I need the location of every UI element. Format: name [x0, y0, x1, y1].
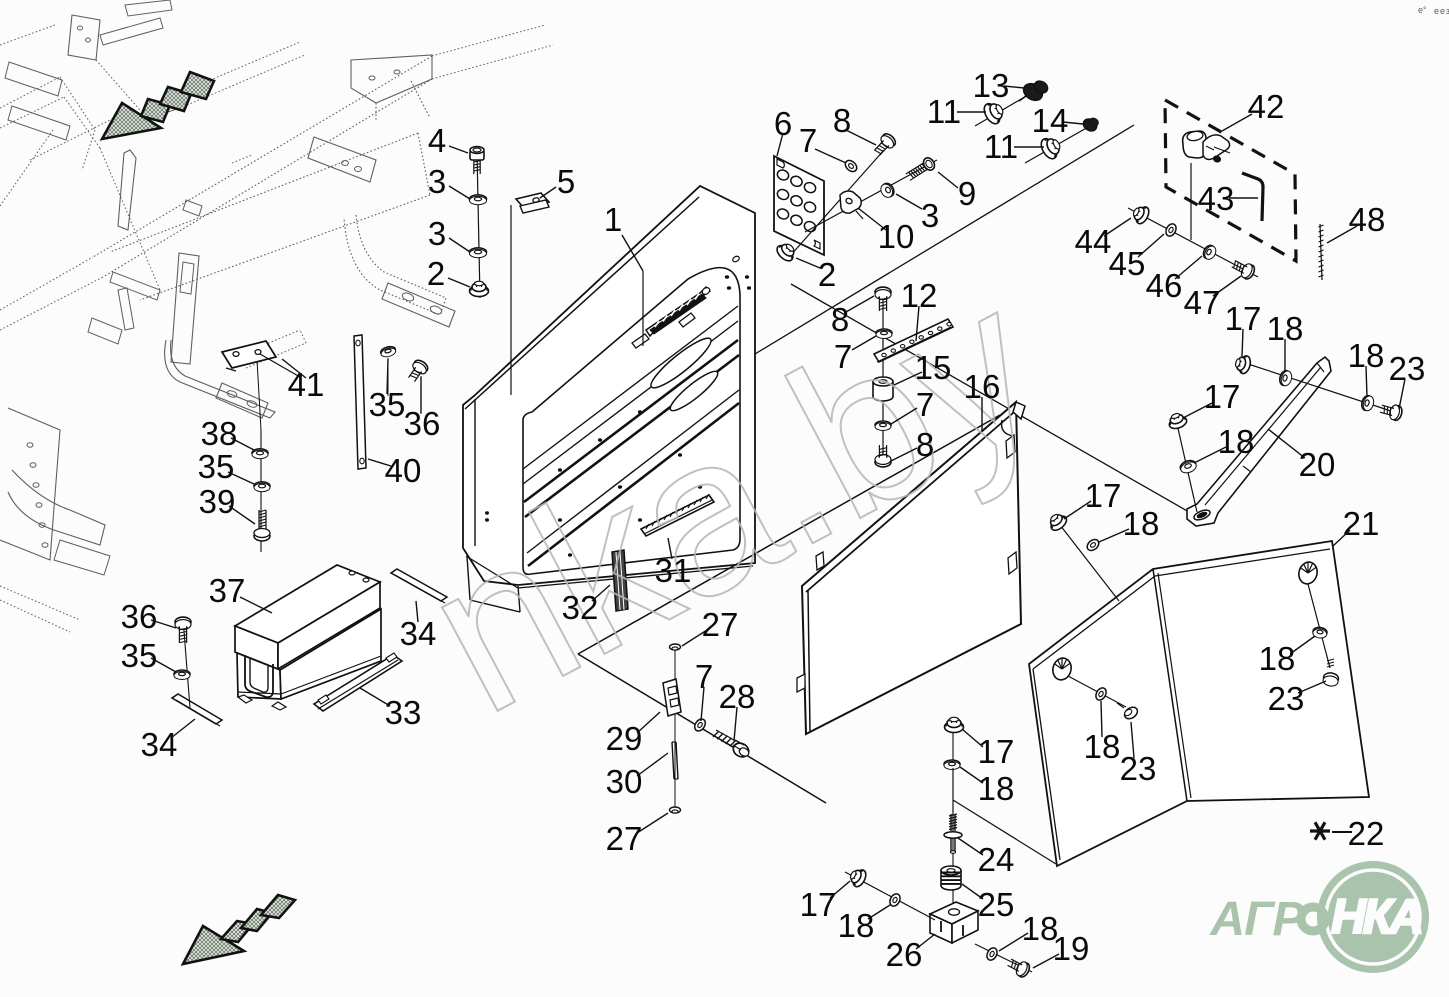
- svg-text:5: 5: [557, 163, 575, 200]
- svg-text:8: 8: [833, 102, 851, 139]
- svg-text:АГР: АГР: [1209, 893, 1305, 946]
- svg-text:36: 36: [404, 405, 441, 442]
- svg-text:37: 37: [209, 572, 246, 609]
- svg-text:45: 45: [1109, 245, 1146, 282]
- svg-text:7: 7: [799, 122, 817, 159]
- svg-text:22: 22: [1348, 815, 1385, 852]
- svg-text:7: 7: [834, 338, 852, 375]
- svg-text:36: 36: [121, 598, 158, 635]
- svg-text:14: 14: [1032, 102, 1069, 139]
- svg-text:НКА: НКА: [1331, 891, 1421, 944]
- svg-text:10: 10: [878, 218, 915, 255]
- svg-text:26: 26: [886, 936, 923, 973]
- svg-text:е°: е°: [1418, 5, 1427, 15]
- svg-text:43: 43: [1198, 180, 1235, 217]
- svg-text:48: 48: [1349, 201, 1386, 238]
- svg-text:3: 3: [921, 197, 939, 234]
- svg-text:27: 27: [606, 820, 643, 857]
- svg-text:15: 15: [915, 349, 952, 386]
- svg-text:35: 35: [121, 637, 158, 674]
- svg-text:19: 19: [1053, 930, 1090, 967]
- svg-text:21: 21: [1343, 505, 1380, 542]
- svg-text:6: 6: [774, 105, 792, 142]
- svg-text:8: 8: [916, 426, 934, 463]
- svg-text:24: 24: [978, 841, 1015, 878]
- svg-text:18: 18: [978, 770, 1015, 807]
- svg-text:17: 17: [800, 886, 837, 923]
- svg-text:2: 2: [427, 255, 445, 292]
- svg-text:35: 35: [198, 448, 235, 485]
- svg-text:47: 47: [1184, 284, 1221, 321]
- svg-text:18: 18: [1259, 640, 1296, 677]
- svg-text:3: 3: [428, 163, 446, 200]
- svg-text:8: 8: [831, 301, 849, 338]
- svg-text:17: 17: [978, 733, 1015, 770]
- svg-text:34: 34: [141, 726, 178, 763]
- svg-text:38: 38: [201, 415, 238, 452]
- svg-text:4: 4: [428, 122, 446, 159]
- svg-text:46: 46: [1146, 267, 1183, 304]
- svg-text:33: 33: [385, 694, 422, 731]
- svg-text:11: 11: [984, 128, 1018, 165]
- svg-text:40: 40: [385, 452, 422, 489]
- svg-text:9: 9: [958, 175, 976, 212]
- svg-text:20: 20: [1299, 446, 1336, 483]
- svg-text:18: 18: [1218, 423, 1255, 460]
- svg-text:17: 17: [1204, 378, 1241, 415]
- svg-text:32: 32: [562, 589, 599, 626]
- svg-text:18: 18: [1123, 505, 1160, 542]
- svg-text:2: 2: [818, 256, 836, 293]
- svg-text:31: 31: [655, 552, 692, 589]
- svg-text:23: 23: [1389, 350, 1426, 387]
- svg-text:29: 29: [606, 720, 643, 757]
- svg-text:1: 1: [604, 201, 622, 238]
- svg-text:18: 18: [838, 907, 875, 944]
- svg-text:3: 3: [428, 215, 446, 252]
- svg-text:25: 25: [978, 886, 1015, 923]
- svg-text:13: 13: [973, 67, 1010, 104]
- svg-text:27: 27: [702, 606, 739, 643]
- svg-text:еез: еез: [1434, 6, 1449, 16]
- svg-text:17: 17: [1085, 477, 1122, 514]
- svg-text:11: 11: [927, 93, 961, 130]
- svg-text:42: 42: [1248, 88, 1285, 125]
- svg-text:39: 39: [199, 483, 236, 520]
- svg-text:30: 30: [606, 763, 643, 800]
- svg-text:23: 23: [1120, 750, 1157, 787]
- svg-text:7: 7: [916, 386, 934, 423]
- svg-text:44: 44: [1075, 223, 1112, 260]
- svg-text:23: 23: [1268, 680, 1305, 717]
- svg-text:41: 41: [288, 366, 325, 403]
